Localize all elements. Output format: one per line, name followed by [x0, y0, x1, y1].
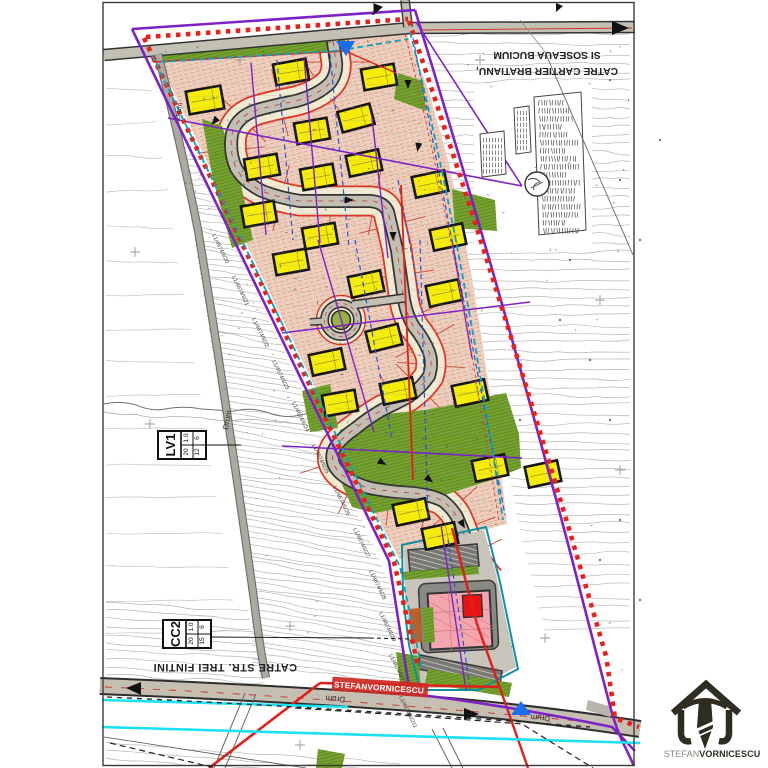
svg-text:1.0: 1.0: [188, 622, 195, 631]
svg-text:CATRE STR. TREI FINTINI: CATRE STR. TREI FINTINI: [153, 661, 297, 673]
svg-text:CC2: CC2: [168, 621, 183, 647]
svg-text:20: 20: [183, 448, 190, 456]
svg-text:6: 6: [194, 436, 201, 440]
svg-text:STEFANVORNICESCU: STEFANVORNICESCU: [664, 749, 761, 759]
svg-text:15: 15: [199, 637, 206, 645]
svg-text:SI SOSEAUA BUCIUM: SI SOSEAUA BUCIUM: [493, 49, 600, 60]
svg-text:LV1: LV1: [163, 434, 178, 457]
svg-text:20: 20: [188, 637, 195, 645]
svg-text:Drum: Drum: [325, 694, 345, 704]
svg-text:6: 6: [199, 625, 206, 629]
svg-text:CATRE CARTIER BRATIANU,: CATRE CARTIER BRATIANU,: [476, 65, 618, 76]
svg-text:Drum: Drum: [530, 713, 550, 723]
svg-text:1.0: 1.0: [183, 433, 190, 442]
svg-text:12: 12: [194, 448, 201, 456]
